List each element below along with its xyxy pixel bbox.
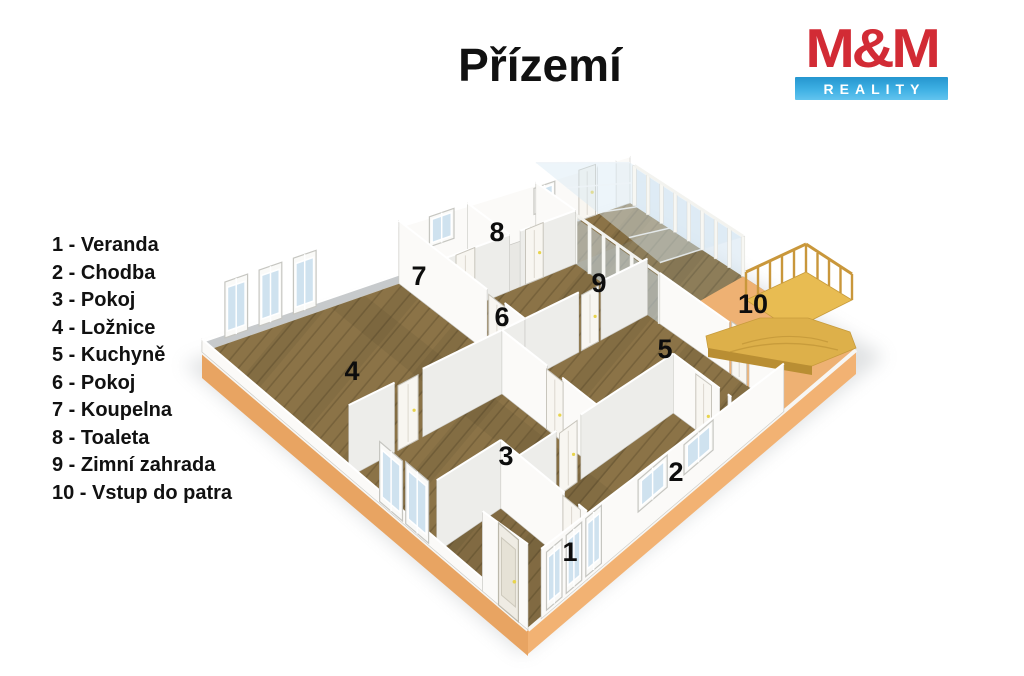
legend-item-4: 4 - Ložnice xyxy=(52,315,232,343)
room-number-9: 9 xyxy=(591,268,606,298)
room-number-3: 3 xyxy=(498,441,513,471)
legend-item-5: 5 - Kuchyně xyxy=(52,342,232,370)
legend-item-1: 1 - Veranda xyxy=(52,232,232,260)
logo-mm-text: M&M xyxy=(789,20,954,76)
legend-item-9: 9 - Zimní zahrada xyxy=(52,452,232,480)
legend-item-6: 6 - Pokoj xyxy=(52,370,232,398)
legend-item-2: 2 - Chodba xyxy=(52,260,232,288)
mm-reality-logo: M&M REALITY xyxy=(795,20,948,100)
room-number-2: 2 xyxy=(668,457,683,487)
room-number-6: 6 xyxy=(494,302,509,332)
room-number-10: 10 xyxy=(738,289,768,319)
room-number-8: 8 xyxy=(489,217,504,247)
logo-reality-text: REALITY xyxy=(818,82,926,96)
room-number-4: 4 xyxy=(344,356,359,386)
logo-reality-bar: REALITY xyxy=(795,77,948,100)
room-number-7: 7 xyxy=(411,261,426,291)
room-number-1: 1 xyxy=(562,537,577,567)
room-legend: 1 - Veranda 2 - Chodba 3 - Pokoj 4 - Lož… xyxy=(52,232,232,507)
legend-item-8: 8 - Toaleta xyxy=(52,425,232,453)
legend-item-3: 3 - Pokoj xyxy=(52,287,232,315)
legend-item-10: 10 - Vstup do patra xyxy=(52,480,232,508)
legend-item-7: 7 - Koupelna xyxy=(52,397,232,425)
room-number-5: 5 xyxy=(657,334,672,364)
